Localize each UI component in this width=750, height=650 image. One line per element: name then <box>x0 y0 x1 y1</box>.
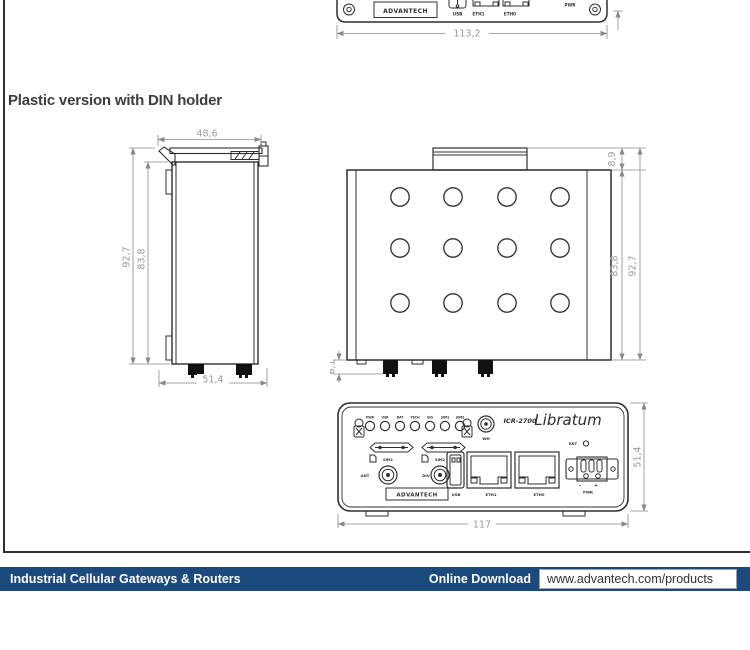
din-clip <box>433 148 527 170</box>
dim-48-6: 48,6 <box>196 129 217 140</box>
dim-83-8-side: 83,8 <box>137 248 148 269</box>
device-body <box>347 170 611 364</box>
rst-label: RST <box>569 441 578 446</box>
dim-92-7-side: 92,7 <box>122 246 133 267</box>
div-label: DIV <box>422 473 430 478</box>
footer-url-box[interactable]: www.advantech.com/products <box>539 569 737 589</box>
sim2-label: SIM2 <box>435 458 446 462</box>
eth1-port: ETH1 <box>467 452 511 497</box>
page-left-rule <box>3 0 5 552</box>
plus-label: + <box>594 483 598 489</box>
ant-connector: ANT <box>361 466 397 484</box>
dimension-height-right: 51,4 <box>630 403 648 511</box>
usb-port: USB <box>447 452 464 497</box>
led-label-usr: USR <box>381 416 389 420</box>
power-terminal: - + PWR <box>566 457 618 495</box>
eth1-port-partial <box>473 0 499 6</box>
model-name: ICR-2700 <box>504 417 537 425</box>
side-view-drawing: 48,6 92,7 83,8 51,4 <box>85 120 305 395</box>
footer-bar: Industrial Cellular Gateways & Routers O… <box>0 567 750 591</box>
dim-117: 117 <box>473 520 491 531</box>
dim-51-4-side: 51,4 <box>202 375 223 386</box>
section-heading: Plastic version with DIN holder <box>8 92 222 109</box>
footer-category: Industrial Cellular Gateways & Routers <box>10 572 241 586</box>
eth0-label: ETH0 <box>533 492 544 497</box>
front-panel-drawing: PWR USR DAT TECH SIG SIM1 SIM2 WH ICR-27… <box>330 395 660 535</box>
pwr-label: PWR <box>565 3 577 8</box>
usb-label: USB <box>452 492 461 497</box>
device-body <box>166 162 258 364</box>
screw-left-icon <box>344 4 355 15</box>
eth0-port: ETH0 <box>515 452 559 497</box>
page-bottom-rule <box>3 551 750 553</box>
led-label-sim1: SIM1 <box>441 416 450 420</box>
brand-logo: ADVANTECH <box>383 8 428 15</box>
top-view-drawing: ADVANTECH USB ETH1 ETH0 PWR 113,2 <box>330 0 630 48</box>
ant-label: ANT <box>361 473 370 478</box>
dimension-width-113: 113,2 <box>337 25 607 40</box>
back-view-drawing: 8,9 83,8 92,7 6,1 <box>330 130 660 390</box>
dim-113-2: 113,2 <box>453 29 480 40</box>
eth0-port-partial <box>503 0 529 6</box>
series-name: Libratum <box>534 411 601 429</box>
wh-label: WH <box>482 436 489 441</box>
led-row: PWR USR DAT TECH SIG SIM1 SIM2 <box>365 416 464 431</box>
sim-card-icon <box>422 455 428 462</box>
eth1-label: ETH1 <box>472 12 484 17</box>
dim-6-1: 6,1 <box>330 359 338 374</box>
eth0-label: ETH0 <box>504 12 516 17</box>
wifi-connector: WH <box>478 416 494 441</box>
led-label-pwr: PWR <box>366 416 375 420</box>
eth1-label: ETH1 <box>485 492 496 497</box>
usb-label: USB <box>453 12 463 17</box>
minus-label: - <box>579 483 581 489</box>
led-label-tech: TECH <box>410 416 419 420</box>
led-label-sim2: SIM2 <box>456 416 465 420</box>
screw-right-icon <box>590 4 601 15</box>
sim1-label: SIM1 <box>383 458 394 462</box>
dimension-partial-right <box>614 11 623 30</box>
dim-8-9: 8,9 <box>607 151 618 166</box>
dimension-heights-left: 92,7 83,8 <box>122 148 171 364</box>
dim-83-8-back: 83,8 <box>610 255 621 276</box>
sim-card-icon <box>370 455 376 462</box>
seal-screw-left-icon <box>354 419 364 437</box>
brand-logo: ADVANTECH <box>396 493 437 499</box>
reset-button: RST <box>569 441 589 446</box>
footer-url[interactable]: www.advantech.com/products <box>540 572 713 586</box>
led-label-dat: DAT <box>397 416 405 420</box>
sim-slot-1: SIM1 <box>370 443 413 462</box>
usb-port-partial <box>449 0 466 8</box>
footer-download-label: Online Download <box>429 572 531 586</box>
dim-51-4-front: 51,4 <box>633 446 644 467</box>
div-connector: DIV <box>422 466 449 484</box>
dim-92-7-back: 92,7 <box>628 255 639 276</box>
dimension-top-width: 48,6 <box>158 129 261 147</box>
vent-holes <box>391 188 569 312</box>
pwr-label: PWR <box>583 490 593 495</box>
led-label-sig: SIG <box>427 416 433 420</box>
antenna-connectors <box>383 360 493 377</box>
